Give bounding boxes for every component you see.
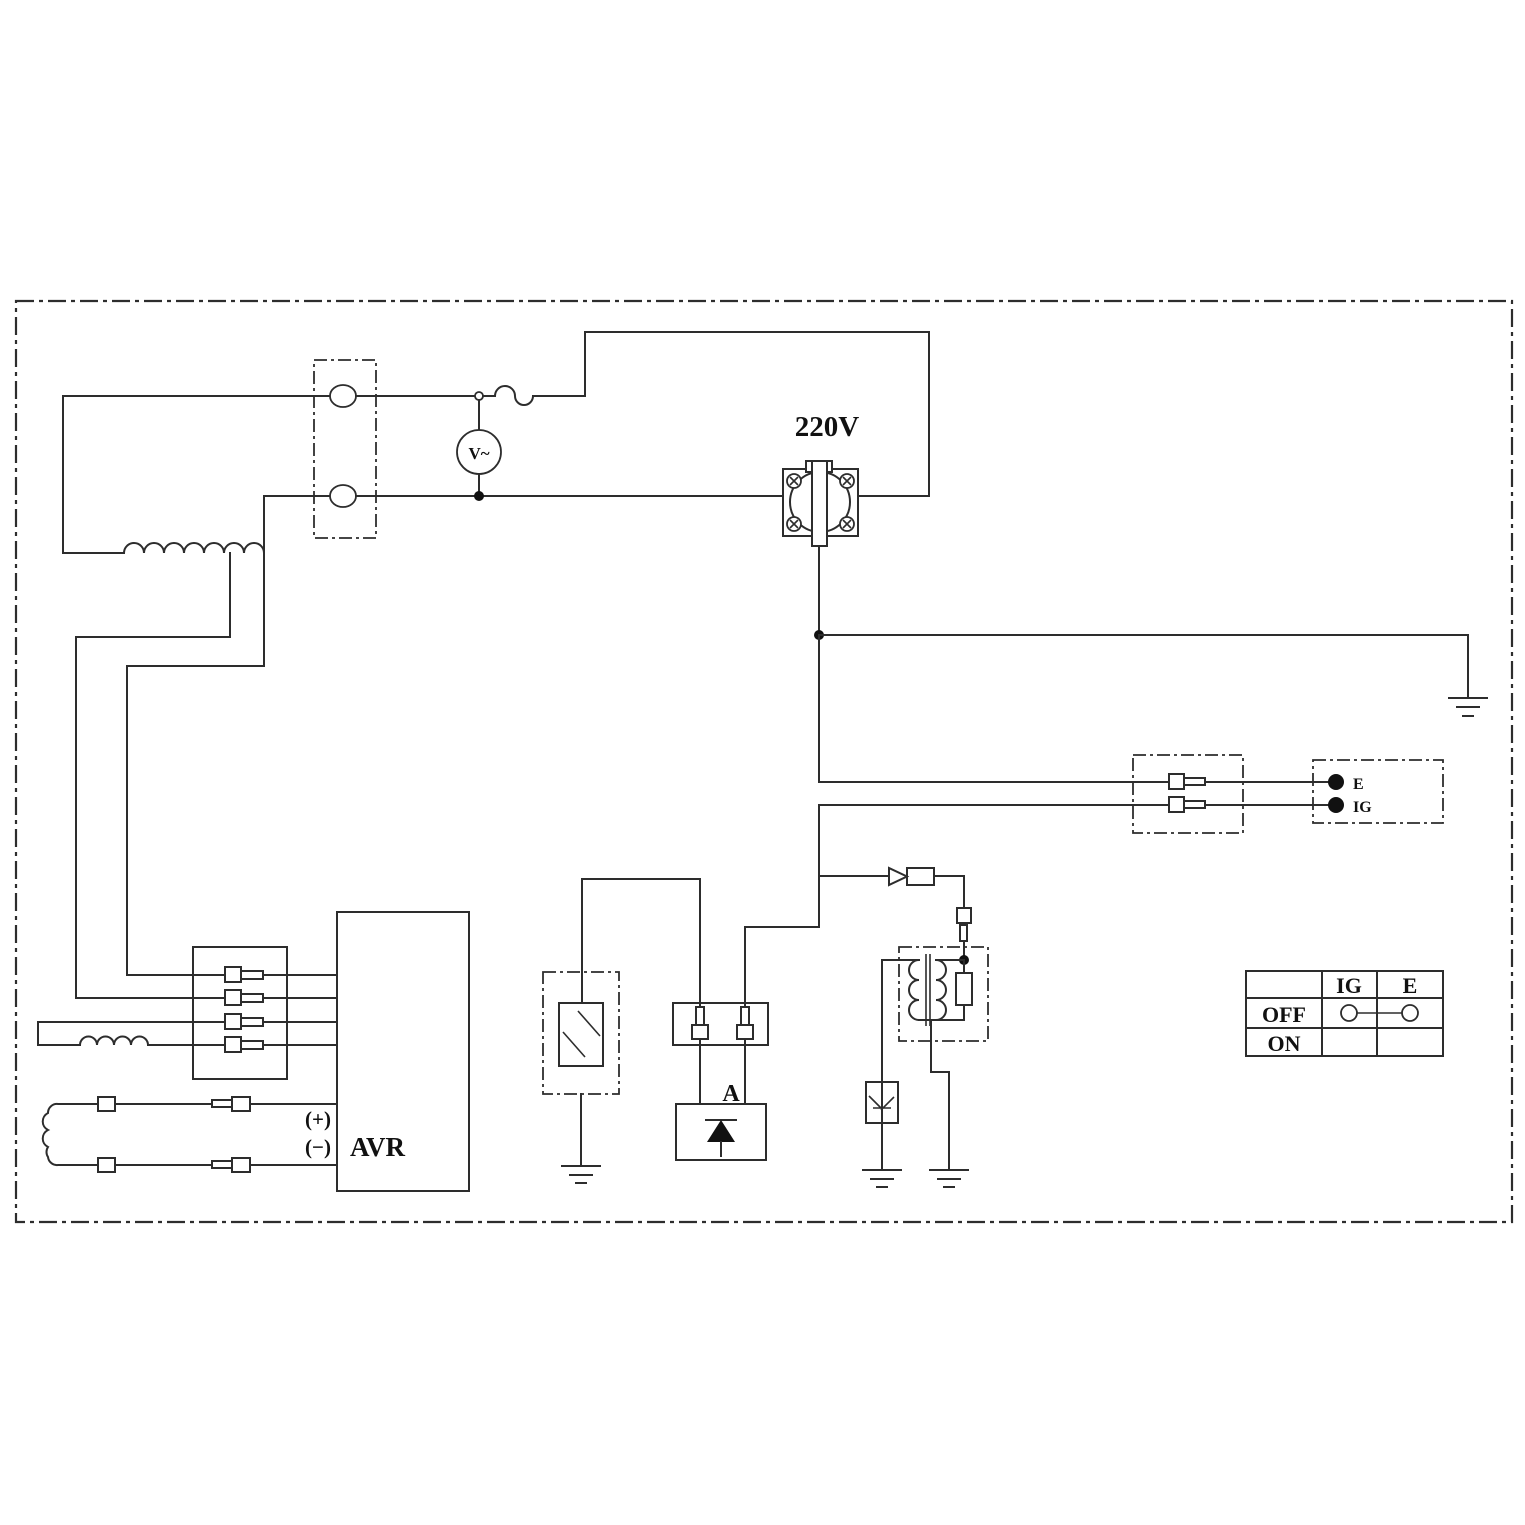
- receptacle-blade: [812, 461, 827, 546]
- ground-icon: [562, 1166, 600, 1183]
- table-header-e: E: [1403, 973, 1418, 998]
- diode-icon: [707, 1120, 735, 1142]
- rotor-brush-circuit: [43, 1097, 337, 1172]
- stator-winding-coil: [124, 543, 264, 553]
- stop-switch-circuit: E IG: [745, 635, 1443, 927]
- stop-switch-connector: [1133, 755, 1243, 833]
- connector-socket: [225, 1037, 241, 1052]
- ground-run: [814, 546, 1487, 716]
- tap-node: [475, 392, 483, 400]
- avr-label: AVR: [350, 1132, 406, 1162]
- avr-negative-label: (−): [305, 1135, 331, 1159]
- connector-pin: [241, 1018, 263, 1026]
- terminal-e-label: E: [1353, 776, 1364, 793]
- avr-connector: [193, 947, 287, 1079]
- output-terminal-connector: [314, 360, 376, 538]
- terminal-ring-top: [330, 385, 356, 407]
- connector-pin: [212, 1100, 232, 1107]
- connector-socket: [232, 1097, 250, 1111]
- connector-socket: [225, 1014, 241, 1029]
- stop-switch-terminal-box: E IG: [1313, 760, 1443, 823]
- charging-connector: [673, 927, 768, 1104]
- rotor-winding-coil: [43, 1104, 98, 1165]
- voltmeter-label: V~: [468, 444, 489, 463]
- avr-positive-label: (+): [305, 1107, 331, 1131]
- connector-socket: [98, 1097, 115, 1111]
- ground-icon: [930, 1170, 968, 1187]
- connector-pin: [960, 925, 967, 941]
- table-header-ig: IG: [1336, 973, 1362, 998]
- screw-icon: [787, 517, 801, 531]
- connector-socket: [232, 1158, 250, 1172]
- connector-pin: [1184, 778, 1205, 785]
- ignition-coil-unit: [882, 947, 988, 1187]
- rectifier-unit-a: A: [676, 1081, 766, 1160]
- screw-icon: [787, 474, 801, 488]
- connector-socket: [1169, 797, 1184, 812]
- primary-winding-coil: [909, 960, 919, 1020]
- generator-wiring-schematic: V~ 220V: [0, 0, 1525, 1525]
- ground-icon: [863, 1170, 901, 1187]
- connector-pin: [1184, 801, 1205, 808]
- off-contact-e: [1402, 1005, 1418, 1021]
- lamp-slashes-icon: [563, 1011, 600, 1057]
- diagram-border: [16, 301, 1512, 1222]
- screw-icon: [840, 474, 854, 488]
- connector-socket: [225, 990, 241, 1005]
- ac-voltmeter: V~: [457, 392, 501, 501]
- connector-pin: [241, 994, 263, 1002]
- junction-dot: [474, 491, 484, 501]
- connector-socket: [692, 1025, 708, 1039]
- off-contact-ig: [1341, 1005, 1357, 1021]
- secondary-winding-coil: [936, 960, 946, 1020]
- screw-icon: [840, 517, 854, 531]
- connector-socket: [737, 1025, 753, 1039]
- receptacle-220v: 220V: [783, 411, 859, 546]
- connector-socket: [957, 908, 971, 923]
- terminal-ig-label: IG: [1353, 799, 1372, 816]
- fuse-symbol: [483, 386, 585, 405]
- inline-element: [907, 868, 934, 885]
- connector-pin: [741, 1007, 749, 1025]
- terminal-e-dot: [1328, 774, 1344, 790]
- connector-pin: [241, 971, 263, 979]
- inline-diode-icon: [889, 868, 907, 885]
- connector-pin: [241, 1041, 263, 1049]
- sub-winding-coil: [80, 1037, 148, 1046]
- connector-pin: [212, 1161, 232, 1168]
- wiring-diagram-page: V~ 220V: [0, 0, 1525, 1525]
- coil-core: [926, 954, 930, 1026]
- connector-socket: [1169, 774, 1184, 789]
- table-row-on: ON: [1268, 1031, 1301, 1056]
- connector-socket: [225, 967, 241, 982]
- stop-switch-table: IG E OFF ON: [1246, 971, 1443, 1056]
- ground-icon: [1449, 698, 1487, 716]
- avr-section: AVR (+) (−): [38, 912, 469, 1191]
- connector-pin: [696, 1007, 704, 1025]
- connector-socket: [98, 1158, 115, 1172]
- table-row-off: OFF: [1262, 1002, 1306, 1027]
- outlet-voltage-label: 220V: [795, 411, 860, 443]
- terminal-ig-dot: [1328, 797, 1344, 813]
- spark-plug: [863, 960, 901, 1187]
- resistor: [956, 973, 972, 1005]
- terminal-ring-bottom: [330, 485, 356, 507]
